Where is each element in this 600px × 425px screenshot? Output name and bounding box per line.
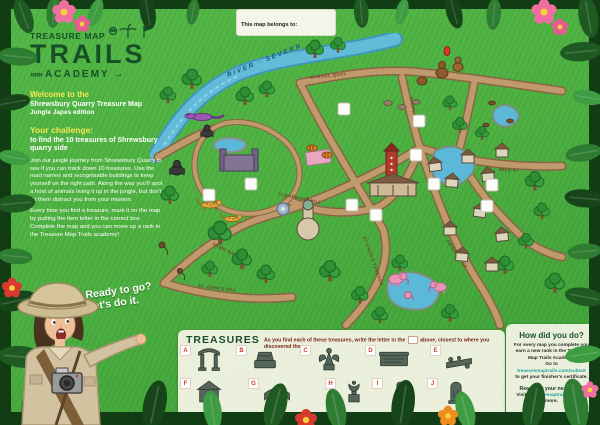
logo-doodles: [108, 24, 152, 40]
answer-box[interactable]: [481, 200, 493, 212]
logo-arrows-icon: »»»: [30, 70, 42, 79]
treasure-letter-chip: D: [365, 345, 376, 356]
how-goto: Go to: [545, 362, 558, 367]
how-visit: Visit: [516, 393, 526, 398]
treasure-letter-chip: H: [325, 378, 336, 389]
answer-box[interactable]: [413, 115, 425, 127]
wall-plaque-illustration: [378, 345, 410, 372]
mini-answer-box-icon: [408, 336, 418, 344]
flag-doodle-icon: [144, 26, 151, 38]
door-tablet-illustration: [440, 378, 472, 405]
treasure-item-c: C: [300, 345, 345, 372]
treasure-letter-chip: E: [430, 345, 441, 356]
challenge-subheading: to find the 10 treasures of Shrewsbury q…: [30, 137, 164, 154]
challenge-paragraph-2: Every time you find a treasure, mark it …: [30, 208, 164, 239]
answer-box[interactable]: [370, 209, 382, 221]
ruined-slab-illustration: [443, 345, 475, 372]
map-edition: Jungle Japes edition: [30, 109, 164, 116]
belongs-to-box[interactable]: This map belongs to:: [236, 9, 336, 36]
answer-box[interactable]: [486, 179, 498, 191]
answer-box[interactable]: [410, 149, 422, 161]
how-did-you-do-box: How did you do? For every map you comple…: [506, 324, 597, 418]
red-tower: [384, 143, 399, 177]
logo-title: TRAILS: [30, 41, 164, 68]
treasure-item-a: A: [180, 345, 225, 372]
submit-link[interactable]: treasuremaptrails.com/submit: [517, 369, 586, 374]
palm-tree-doodle-icon: [120, 24, 136, 38]
how-title: How did you do?: [511, 331, 592, 340]
treasure-letter-chip: G: [248, 378, 259, 389]
how-body-1: For every map you complete you earn a ne…: [514, 343, 589, 361]
treasure-item-g: G: [248, 378, 293, 405]
answer-box[interactable]: [338, 103, 350, 115]
gorilla: [169, 161, 185, 176]
treasure-letter-chip: I: [372, 378, 383, 389]
fountain: [277, 203, 289, 215]
treasure-letter-chip: J: [427, 378, 438, 389]
lych-gate-illustration: [193, 345, 225, 372]
treasure-item-h: H: [325, 378, 370, 405]
angel-statue-illustration: [313, 345, 345, 372]
answer-box[interactable]: [346, 199, 358, 211]
castle: [220, 149, 258, 171]
copyright: © 2020 Treasure Map Trails: [511, 411, 592, 416]
treasure-item-f: F: [180, 378, 225, 405]
treasure-letter-chip: A: [180, 345, 191, 356]
how-body-2: to get your finisher's certificate.: [515, 375, 588, 380]
treasure-item-d: D: [365, 345, 410, 372]
urn-pedestal-illustration: [338, 378, 370, 405]
explorer-girl-photo: [0, 277, 146, 425]
how-next-map: Ready for your next map?: [511, 386, 592, 392]
curved-wall-illustration: [261, 378, 293, 405]
logo-arrow-right-icon: →: [113, 69, 124, 80]
treasure-item-b: B: [236, 345, 281, 372]
map-illustration: RIVER · SEVERN: [150, 33, 580, 333]
treasure-item-j: J: [427, 378, 472, 405]
intro-column: TREASURE MAP TRAILS »»»: [30, 24, 164, 240]
site-link[interactable]: treasuremaptrails.com: [528, 393, 579, 398]
treasures-banner: TREASURES As you find each of these trea…: [178, 330, 505, 418]
challenge-heading: Your challenge:: [30, 125, 164, 135]
treasure-letter-chip: B: [236, 345, 247, 356]
shrine-house-illustration: [193, 378, 225, 405]
treasure-item-e: E: [430, 345, 475, 372]
answer-box[interactable]: [428, 178, 440, 190]
crocodile: [185, 114, 224, 121]
answer-box[interactable]: [203, 189, 215, 201]
logo-academy-text: ACADEMY: [45, 70, 110, 80]
parrots: [444, 46, 573, 59]
welcome-heading: Welcome to the: [30, 90, 164, 99]
challenge-paragraph-1: Join our jungle journey from Shrewsbury …: [30, 158, 164, 205]
tiger-picnic: [306, 145, 332, 166]
belongs-to-label: This map belongs to:: [241, 22, 297, 28]
answer-box[interactable]: [245, 178, 257, 190]
headstone-illustration: [385, 378, 417, 405]
map-subtitle: Shrewsbury Quarry Treasure Map: [30, 101, 164, 108]
treasure-map-trails-logo: TREASURE MAP TRAILS »»»: [30, 24, 164, 80]
instruction-pre: As you find each of these treasures, wri…: [264, 337, 405, 343]
stone-tomb-illustration: [249, 345, 281, 372]
treasure-item-i: I: [372, 378, 417, 405]
svg-text:MILK ST: MILK ST: [499, 167, 519, 173]
treasure-letter-chip: F: [180, 378, 191, 389]
treasure-letter-chip: C: [300, 345, 311, 356]
